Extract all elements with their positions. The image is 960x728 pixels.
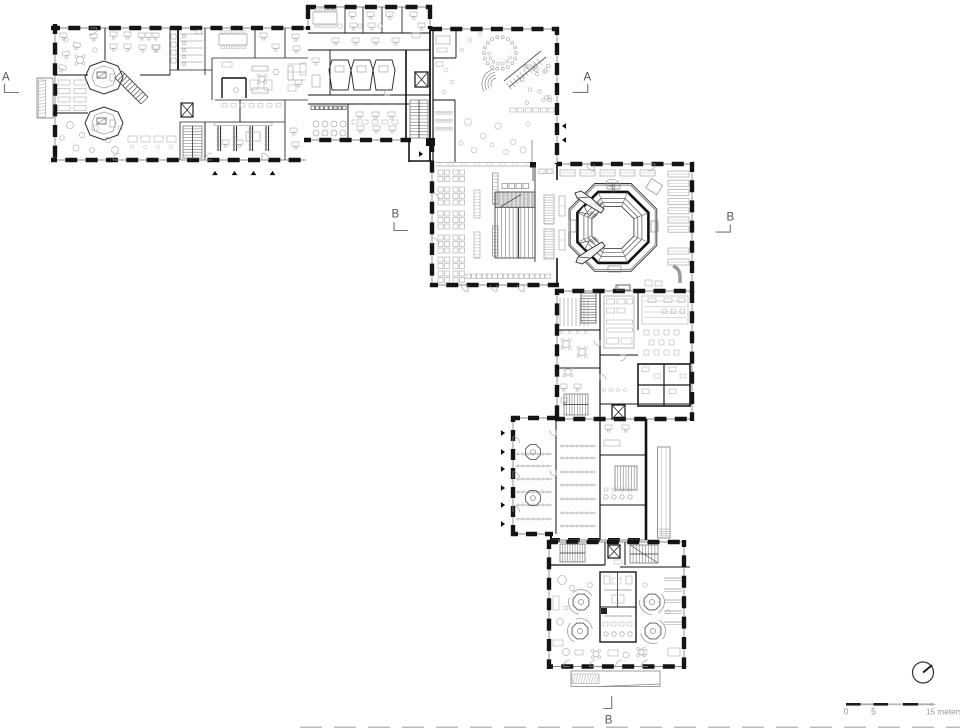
svg-text:A: A xyxy=(584,72,592,84)
svg-text:A: A xyxy=(2,72,10,84)
svg-text:15 meters: 15 meters xyxy=(926,708,960,717)
svg-text:B: B xyxy=(392,209,400,221)
svg-text:B: B xyxy=(605,715,613,727)
svg-text:0: 0 xyxy=(844,707,849,717)
svg-text:5: 5 xyxy=(871,707,876,717)
svg-text:B: B xyxy=(727,212,735,224)
